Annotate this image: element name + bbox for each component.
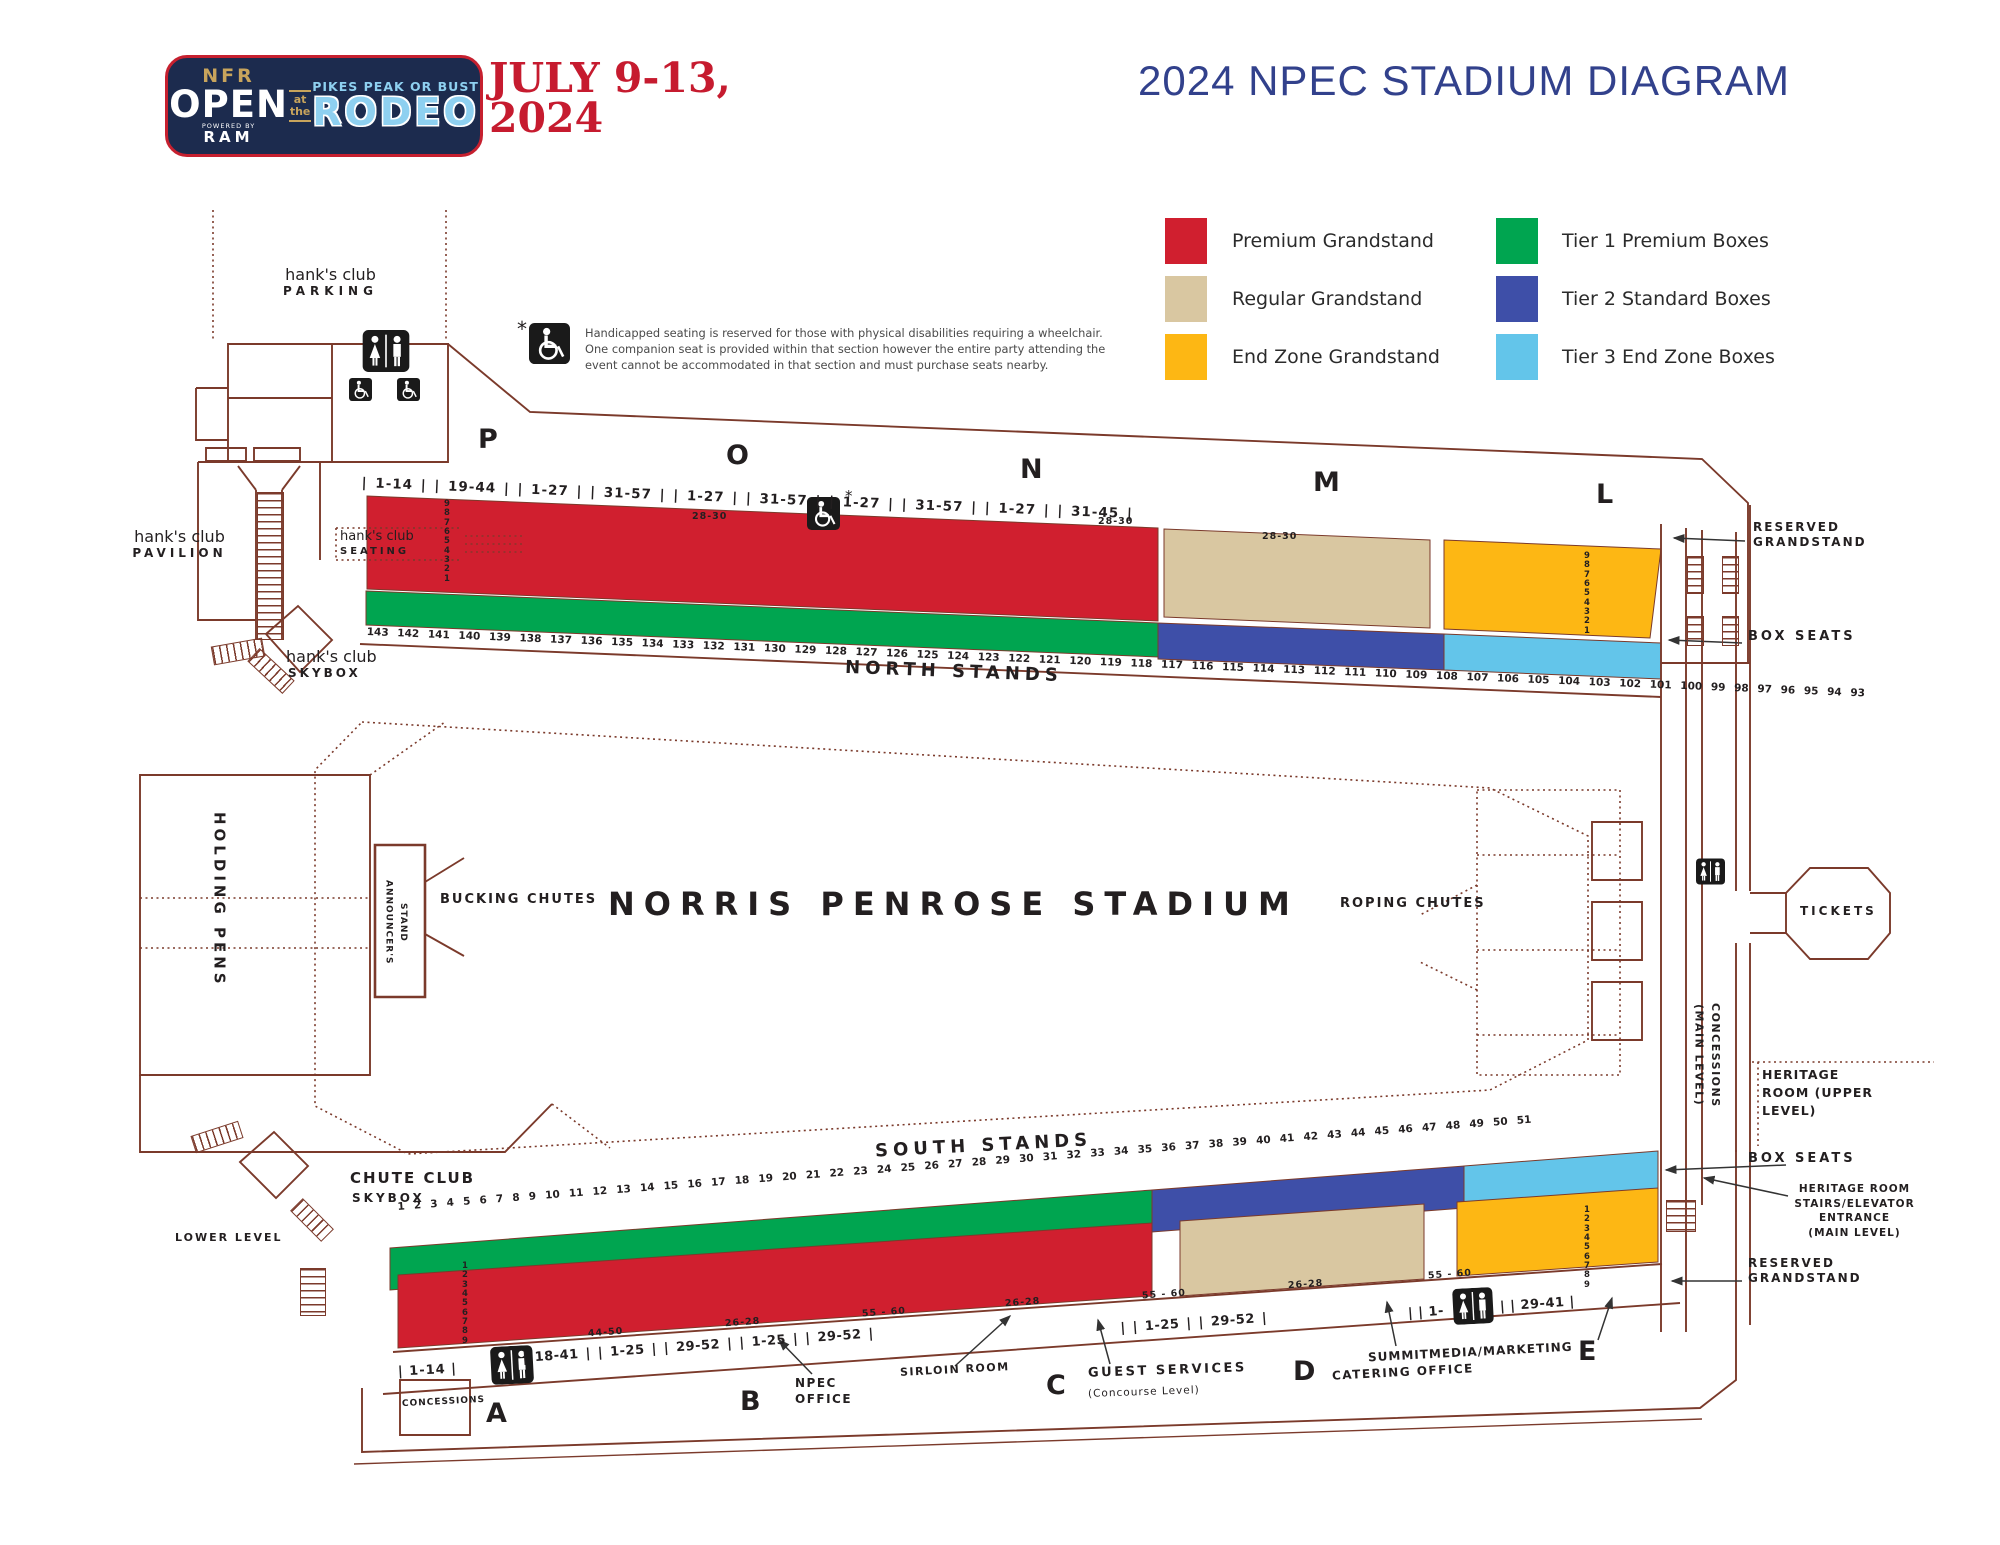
pavilion-stairs [257,492,284,640]
concessions-main-level-label: CONCESSIONS (MAIN LEVEL) [1690,938,1723,1173]
npec-office-label: NPEC OFFICE [795,1376,852,1407]
disclaimer-asterisk: * [517,318,527,341]
north-red-row-numbers: 9 8 7 6 5 4 3 2 1 [444,500,450,584]
north-wheelchair-asterisk: * [845,488,853,505]
stadium-name: NORRIS PENROSE STADIUM [608,886,1299,923]
wheelchair-icon [529,323,570,364]
legend-swatch-premium [1165,218,1207,264]
legend-label-tier3: Tier 3 End Zone Boxes [1562,346,1775,368]
legend-swatch-regular [1165,276,1207,322]
restroom-icon [363,330,410,372]
lower-level-stairs [300,1268,326,1316]
disclaimer-text: Handicapped seating is reserved for thos… [585,325,1115,374]
logo-open: OPEN [169,86,288,123]
legend-swatch-tier2 [1496,276,1538,322]
logo-divider: at the [289,88,311,123]
logo-left: NFR OPEN POWERED BY RAM [169,67,288,145]
south-reserved-grandstand-label: RESERVED GRANDSTAND [1748,1256,1862,1286]
logo-right: PIKES PEAK OR BUST RODEO [312,81,479,132]
hanks-club-seating-name: hank's club [340,530,414,545]
hanks-club-skybox-sub: SKYBOX [288,667,361,681]
north-corridor-stairs [1687,556,1704,594]
concourse-letter-c: C [1046,1370,1066,1401]
hanks-club-skybox-name: hank's club [286,648,377,666]
south-box-seats-label: BOX SEATS [1748,1152,1856,1167]
south-range-group-e1: | | 1- [1408,1305,1445,1322]
north-corridor-stairs [1687,616,1704,646]
south-endzone-grandstand-band [1457,1188,1658,1276]
page-title: 2024 NPEC STADIUM DIAGRAM [1138,57,1790,105]
legend-swatch-tier1 [1496,218,1538,264]
north-aisle-28-30: 28-30 [1098,517,1133,528]
logo-divider-line [289,90,311,92]
heritage-stairs-label: HERITAGE ROOM STAIRS/ELEVATOR ENTRANCE (… [1772,1182,1937,1241]
lower-level-label: LOWER LEVEL [175,1232,282,1245]
legend-label-endzone: End Zone Grandstand [1232,346,1440,368]
concourse-letter-e: E [1578,1336,1596,1367]
south-range-1-14: | 1-14 | [398,1362,458,1380]
north-corridor-stairs [1722,616,1739,646]
north-corridor-stairs [1722,556,1739,594]
south-red-row-numbers: 1 2 3 4 5 6 7 8 9 [462,1262,468,1346]
north-box-seats-label: BOX SEATS [1748,630,1856,645]
logo-ram: RAM [204,130,254,145]
north-endzone-grandstand-band [1444,540,1661,638]
concourse-letter-d: D [1293,1356,1315,1387]
heritage-stairs-hatch [1666,1200,1696,1232]
legend-label-tier2: Tier 2 Standard Boxes [1562,288,1771,310]
roping-chutes-label: ROPING CHUTES [1340,897,1486,912]
logo-rodeo: RODEO [312,93,478,131]
nfr-open-logo: NFR OPEN POWERED BY RAM at the PIKES PEA… [165,55,483,157]
hanks-club-pavilion-name: hank's club [112,528,247,546]
announcers-stand-label: ANNOUNCER'S STAND [381,854,410,990]
north-regular-grandstand-band [1164,529,1430,628]
south-endzone-row-numbers: 1 2 3 4 5 6 7 8 9 [1584,1206,1590,1290]
legend-label-tier1: Tier 1 Premium Boxes [1562,230,1769,252]
event-dates-line1: JULY 9-13, [489,58,731,98]
section-letter-m: M [1313,467,1340,498]
concourse-letter-a: A [486,1398,507,1429]
logo-divider-line [289,120,311,122]
north-reserved-grandstand-label: RESERVED GRANDSTAND [1753,520,1867,550]
north-aisle-28-30: 28-30 [692,512,727,523]
chute-club-skybox-name: CHUTE CLUB [350,1170,475,1187]
heritage-room-upper-label: HERITAGE ROOM (UPPER LEVEL) [1762,1066,1890,1120]
north-aisle-28-30: 28-30 [1262,532,1297,543]
hanks-club-pavilion-sub: PAVILION [112,547,247,561]
concourse-letter-b: B [740,1386,761,1417]
hanks-club-parking-sub: PARKING [268,285,393,299]
wheelchair-icon [349,378,372,401]
hanks-club-parking-name: hank's club [268,266,393,284]
section-letter-p: P [478,424,498,455]
event-dates: JULY 9-13, 2024 [489,58,731,138]
section-letter-l: L [1596,479,1613,510]
hanks-club-seating-sub: SEATING [340,546,409,558]
legend-label-premium: Premium Grandstand [1232,230,1434,252]
logo-at-the: at the [290,94,311,117]
stadium-diagram-page: NFR OPEN POWERED BY RAM at the PIKES PEA… [0,0,2000,1545]
holding-pens-label: HOLDING PENS [210,812,227,1062]
section-letter-n: N [1020,454,1043,485]
restroom-icon [1696,858,1725,884]
event-dates-line2: 2024 [489,98,731,138]
wheelchair-icon [397,378,420,401]
bucking-chutes-label: BUCKING CHUTES [440,893,597,908]
legend-label-regular: Regular Grandstand [1232,288,1422,310]
north-endzone-row-numbers: 9 8 7 6 5 4 3 2 1 [1584,552,1590,636]
legend-swatch-endzone [1165,334,1207,380]
legend-swatch-tier3 [1496,334,1538,380]
restroom-icon [1452,1287,1494,1325]
section-letter-o: O [726,440,749,471]
tickets-label: TICKETS [1800,905,1877,919]
